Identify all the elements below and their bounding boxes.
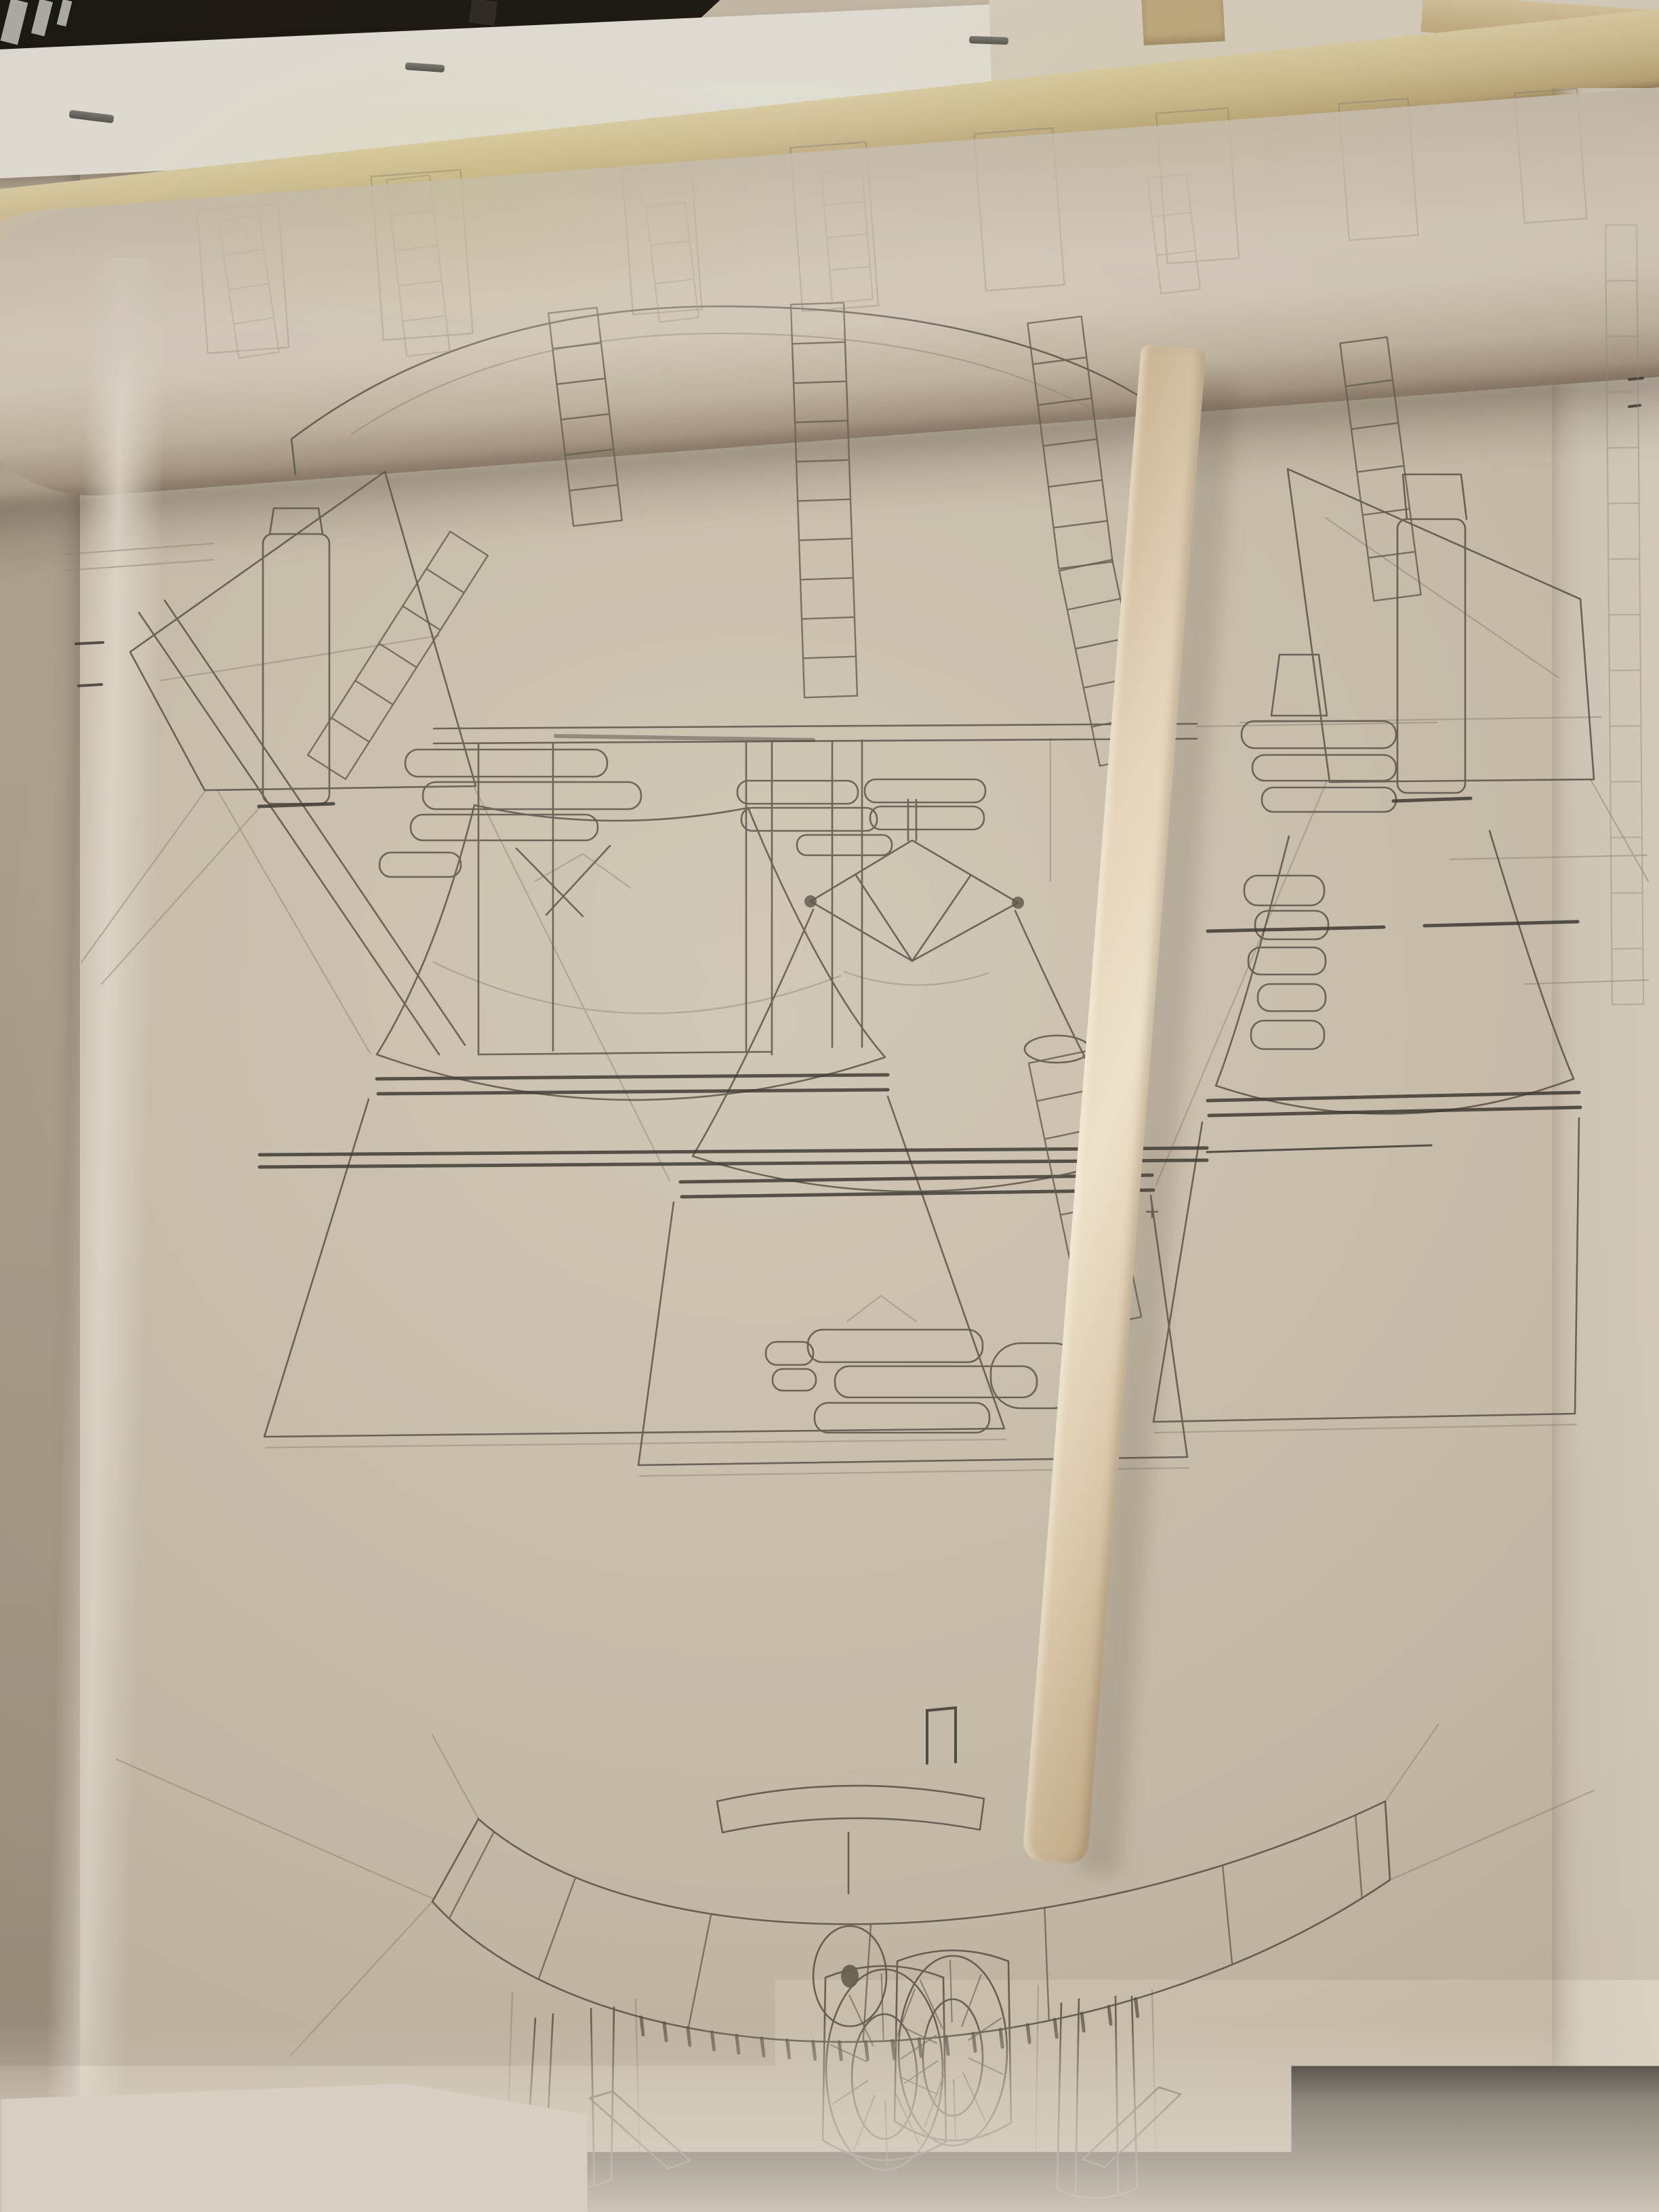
vignette: [0, 0, 1659, 2212]
photo-of-blueprint: [0, 0, 1659, 2212]
